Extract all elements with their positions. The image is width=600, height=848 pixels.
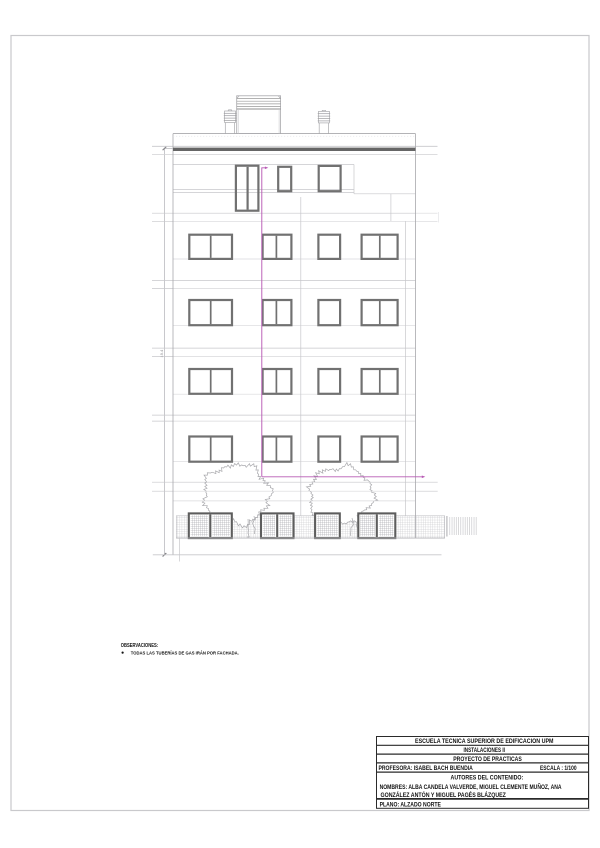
svg-text:INSTALACIONES II: INSTALACIONES II <box>464 748 506 754</box>
svg-text:AUTORES DEL CONTENIDO:: AUTORES DEL CONTENIDO: <box>451 776 524 782</box>
svg-text:PROFESORA: ISABEL BACH BUENDIA: PROFESORA: ISABEL BACH BUENDIA <box>379 766 474 772</box>
svg-text:OBSERVACIONES:: OBSERVACIONES: <box>121 643 159 649</box>
svg-text:ESCALA : 1/100: ESCALA : 1/100 <box>540 766 577 772</box>
svg-text:TODAS LAS TUBERÍAS DE GAS IRÁN: TODAS LAS TUBERÍAS DE GAS IRÁN POR FACHA… <box>131 649 240 657</box>
svg-text:GONZÁLEZ ANTÓN Y MIGUEL PAGÉS: GONZÁLEZ ANTÓN Y MIGUEL PAGÉS BLÁZQUEZ <box>381 791 507 799</box>
svg-text:NOMBRES: ALBA CANDELA VALVERDE: NOMBRES: ALBA CANDELA VALVERDE, MIGUEL C… <box>380 784 563 791</box>
svg-text:19.4: 19.4 <box>159 349 164 358</box>
svg-text:PROYECTO DE PRACTICAS: PROYECTO DE PRACTICAS <box>453 757 522 763</box>
svg-text:ESCUELA TECNICA SUPERIOR DE ED: ESCUELA TECNICA SUPERIOR DE EDIFICACION … <box>415 739 554 745</box>
svg-text:PLANO: ALZADO NORTE: PLANO: ALZADO NORTE <box>380 802 441 808</box>
